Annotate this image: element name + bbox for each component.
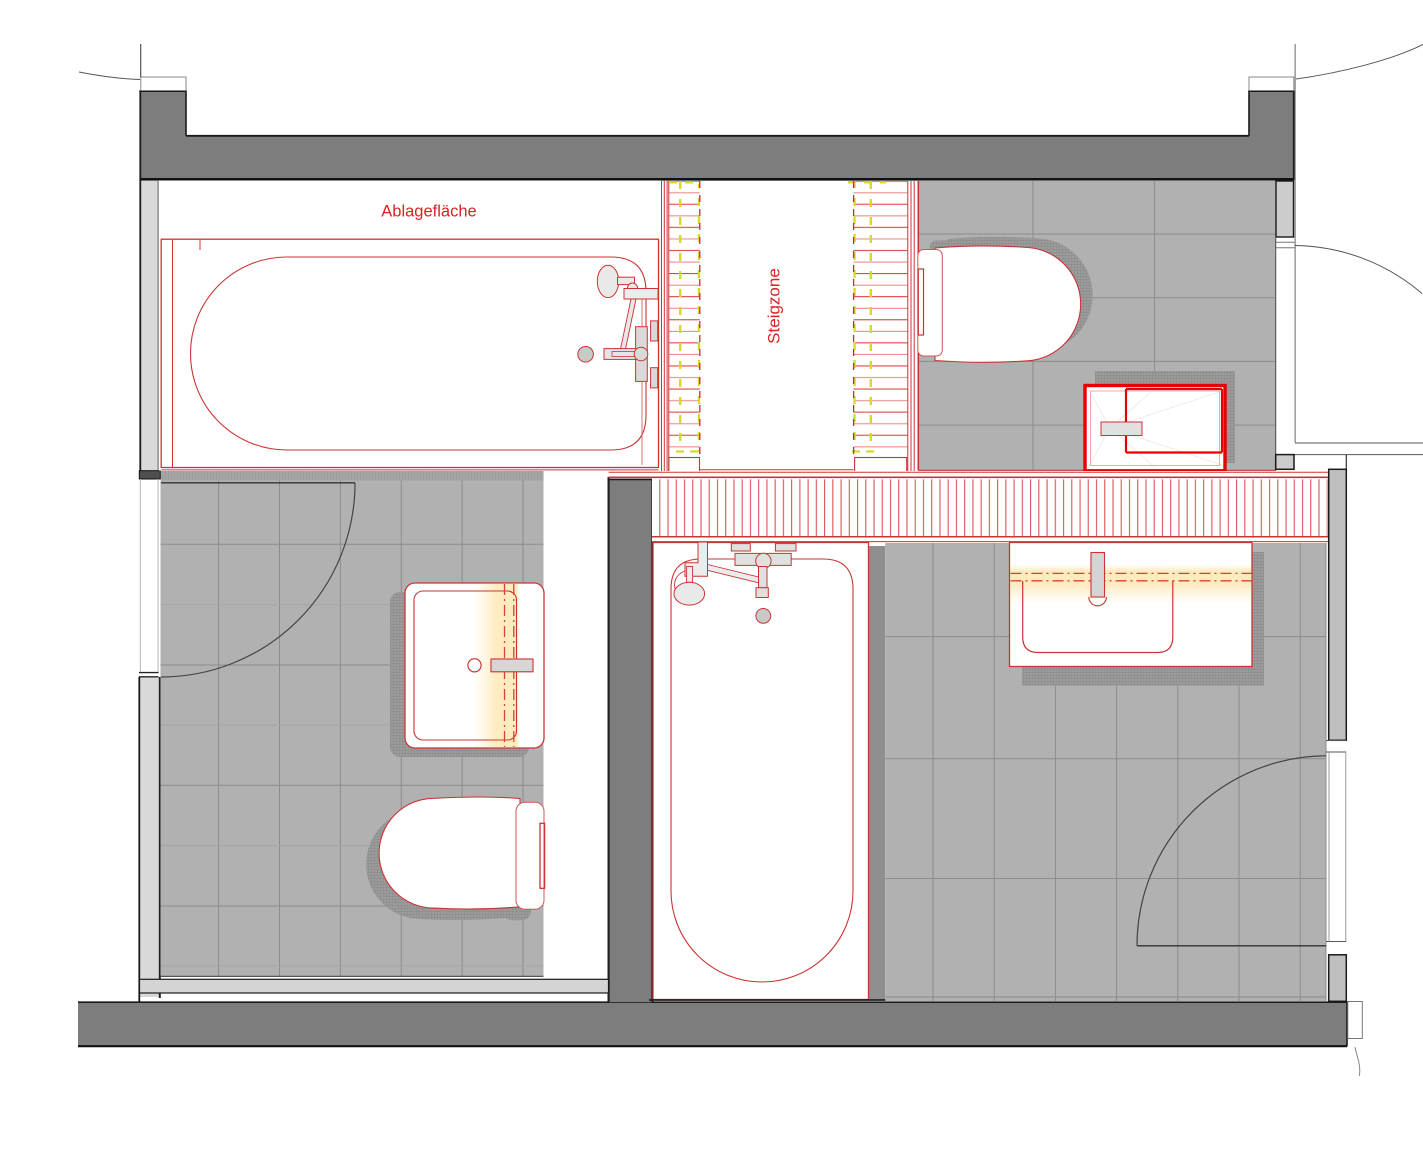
svg-text:Steigzone: Steigzone: [765, 268, 784, 344]
svg-text:Ablagefläche: Ablagefläche: [381, 203, 476, 221]
